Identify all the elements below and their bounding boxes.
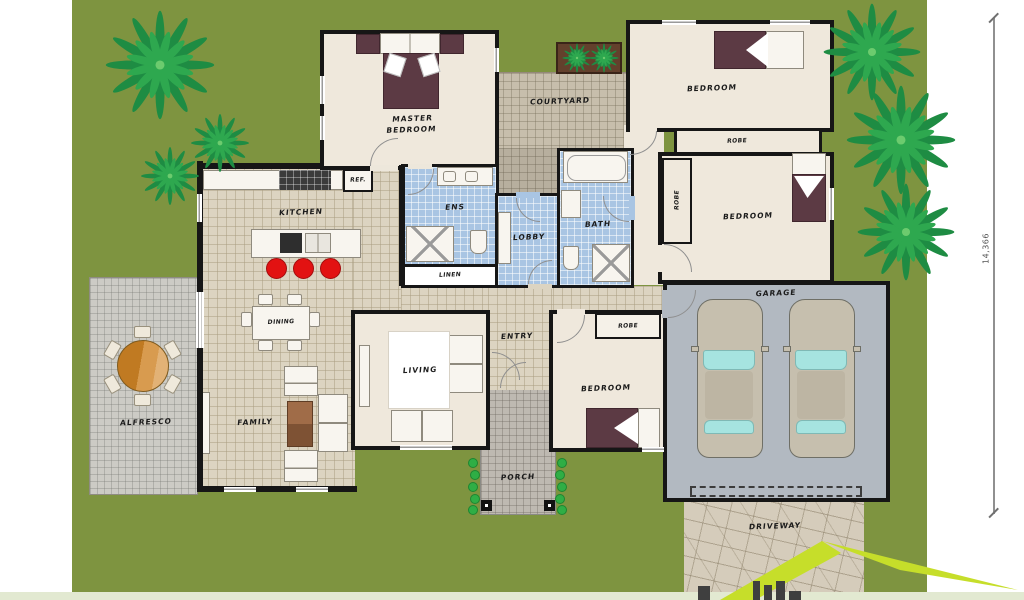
bathtub-inner — [567, 155, 626, 181]
palm-tree-icon — [140, 146, 200, 206]
courtyard-paving — [495, 73, 626, 150]
living-sofa-right — [449, 335, 483, 393]
room-label: BEDROOM — [581, 383, 632, 394]
door-gap — [629, 196, 635, 220]
stool-icon — [266, 258, 287, 279]
room-label: KITCHEN — [279, 207, 324, 218]
logo-fragment — [776, 581, 785, 600]
ens-basin — [465, 171, 478, 182]
room-label: LIVING — [402, 365, 438, 375]
dining-chair — [241, 312, 252, 327]
shrub-icon — [468, 482, 478, 492]
bedroom-right-pillow — [792, 153, 826, 175]
window — [296, 487, 328, 492]
car-mirror — [691, 346, 699, 352]
car — [789, 299, 855, 458]
room-label: LINEN — [439, 271, 462, 279]
window — [400, 445, 452, 450]
room-label: MASTER BEDROOM — [374, 112, 450, 137]
door-gap — [657, 245, 663, 272]
dining-chair — [309, 312, 320, 327]
room-label: FAMILY — [237, 417, 273, 427]
room-label: LOBBY — [512, 232, 545, 242]
planter-plant-icon — [589, 43, 619, 73]
logo-roof-icon — [695, 534, 1024, 600]
car-mirror — [853, 346, 861, 352]
room-label: BEDROOM — [687, 83, 738, 94]
ens-toilet — [470, 230, 487, 254]
lobby-cabinet — [498, 212, 511, 264]
car-rear-window — [704, 420, 754, 434]
floor-plan-scene: MASTER BEDROOM KITCHEN REF. ENS LINEN LO… — [0, 0, 1024, 600]
wardrobe-block-left — [356, 34, 380, 54]
window — [494, 48, 499, 72]
car-windshield — [795, 350, 847, 370]
window — [320, 116, 325, 140]
car-roof — [705, 371, 753, 419]
dining-chair — [287, 340, 302, 351]
bath-vanity — [561, 190, 581, 218]
sliding-door — [196, 292, 204, 348]
dining-chair — [287, 294, 302, 305]
car — [697, 299, 763, 458]
window — [829, 188, 834, 220]
room-label: BATH — [584, 219, 611, 229]
tv-unit — [359, 345, 370, 407]
room-label: DINING — [267, 318, 295, 326]
family-armchair-bottom — [284, 450, 318, 482]
room-label: ALFRESCO — [120, 417, 173, 428]
family-armchair-top — [284, 366, 318, 396]
shrub-icon — [557, 482, 567, 492]
room-label: ENS — [445, 202, 466, 212]
window — [770, 20, 810, 25]
shrub-icon — [557, 458, 567, 468]
car-mirror — [783, 346, 791, 352]
palm-tree-icon — [104, 9, 216, 121]
bedroom-front-mattress — [638, 408, 660, 448]
shrub-icon — [557, 505, 567, 515]
porch-post — [481, 500, 492, 511]
window — [224, 487, 256, 492]
room-label: ROBE — [727, 137, 748, 145]
window — [662, 20, 696, 25]
car-mirror — [761, 346, 769, 352]
porch-post — [544, 500, 555, 511]
alfresco-table — [117, 340, 169, 392]
dimension-label: 14,366 — [982, 219, 991, 279]
wall-kitchen-ens — [399, 165, 405, 286]
island-cooktop — [280, 233, 302, 253]
window — [642, 447, 664, 452]
palm-tree-icon — [845, 84, 957, 196]
porch-paving — [481, 386, 555, 514]
palm-tree-icon — [856, 182, 956, 282]
room-label: GARAGE — [755, 288, 797, 298]
shrub-icon — [470, 470, 480, 480]
logo-fragment — [698, 586, 710, 600]
room-label: PORCH — [500, 472, 535, 482]
room-label: ENTRY — [500, 331, 533, 341]
courtyard-paving-lower — [495, 148, 561, 195]
bedroom-top-mattress — [766, 31, 804, 69]
room-label: DRIVEWAY — [748, 521, 801, 532]
wardrobe-unit — [380, 33, 440, 54]
coffee-table — [287, 401, 313, 447]
wall-family-bottom — [197, 486, 357, 492]
cooktop — [279, 170, 331, 190]
car-rear-window — [796, 420, 846, 434]
room-label: REF. — [350, 176, 367, 184]
shrub-icon — [468, 458, 478, 468]
window — [320, 76, 325, 104]
stool-icon — [293, 258, 314, 279]
ens-basin — [443, 171, 456, 182]
planter-plant-icon — [562, 43, 592, 73]
stool-icon — [320, 258, 341, 279]
room-label: ROBE — [618, 322, 639, 330]
living-sofa-bottom — [391, 410, 453, 442]
island-sink — [305, 233, 331, 253]
bath-shower — [592, 244, 630, 282]
car-windshield — [703, 350, 755, 370]
shrub-icon — [555, 494, 565, 504]
shrub-icon — [468, 505, 478, 515]
room-label: BEDROOM — [723, 211, 774, 222]
shrub-icon — [555, 470, 565, 480]
room-label: ROBE — [674, 190, 681, 211]
logo-fragment — [789, 591, 801, 600]
alfresco-chair — [134, 394, 151, 406]
dining-chair — [258, 340, 273, 351]
shrub-icon — [470, 494, 480, 504]
bath-toilet — [563, 246, 579, 270]
door-gap — [528, 284, 552, 289]
wardrobe-block-right — [440, 34, 464, 54]
logo-fragment — [764, 585, 772, 600]
dining-chair — [258, 294, 273, 305]
dimension-line — [993, 18, 995, 514]
ens-shower — [406, 226, 454, 262]
family-sofa-right — [318, 394, 348, 452]
logo-fragment — [753, 581, 760, 600]
alfresco-chair — [134, 326, 151, 338]
garage-door — [690, 486, 862, 497]
car-roof — [797, 371, 845, 419]
